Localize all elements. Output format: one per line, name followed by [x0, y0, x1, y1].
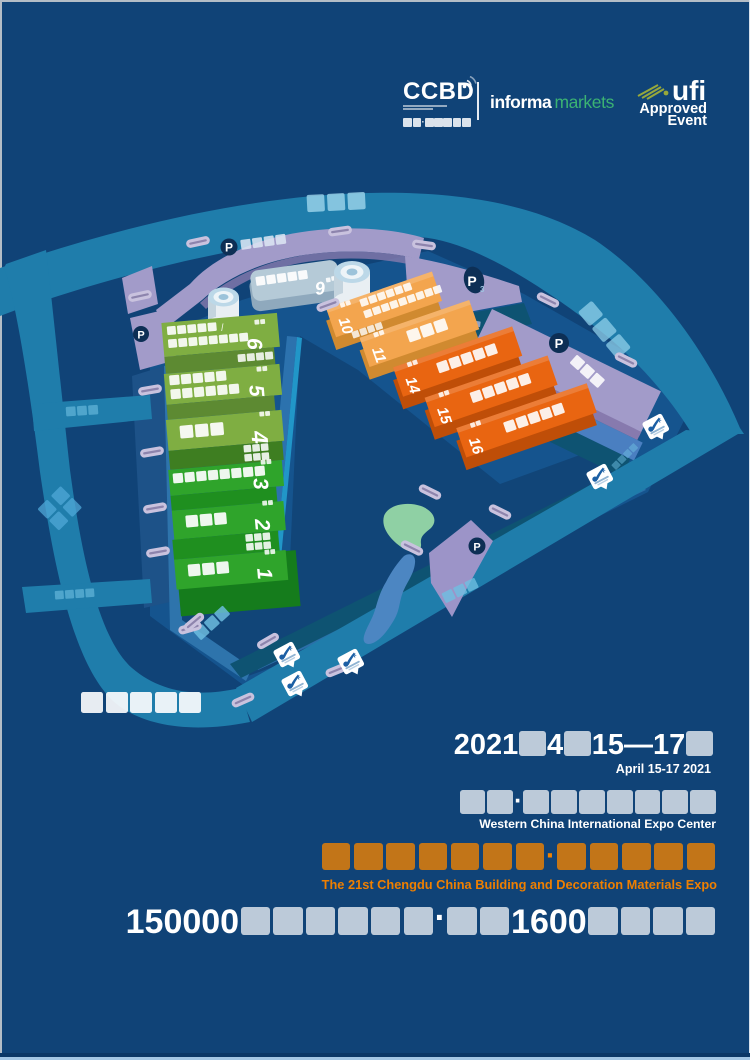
svg-text:2: 2	[250, 517, 274, 532]
svg-text:3: 3	[248, 477, 272, 491]
svg-text:P: P	[467, 273, 476, 289]
svg-text:P: P	[473, 542, 480, 554]
svg-text:P: P	[555, 336, 564, 351]
svg-text:6: 6	[242, 337, 266, 351]
svg-text:1: 1	[252, 567, 276, 581]
svg-text:P: P	[137, 330, 144, 342]
svg-text:4: 4	[246, 429, 273, 445]
svg-text:3: 3	[480, 285, 485, 294]
svg-text:5: 5	[244, 384, 268, 398]
svg-text:P: P	[225, 241, 233, 255]
